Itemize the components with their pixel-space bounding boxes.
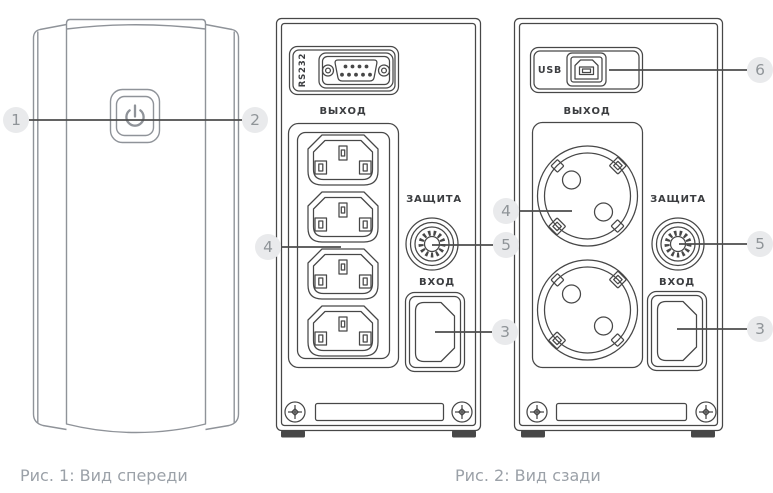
iec-outlet-column-inner	[298, 133, 390, 359]
iec-c13-outlet-2-icon	[308, 192, 378, 242]
iec-c13-outlet-1-icon	[308, 135, 378, 185]
power-icon	[126, 106, 143, 126]
label-output-iec: ВЫХОД	[283, 106, 403, 117]
callout-badge-6-usb-port: 6	[747, 57, 773, 83]
callout-badge-2-power-button: 2	[242, 107, 268, 133]
rear-panel-schuko-drawing	[515, 19, 723, 438]
schuko-c14-inlet-icon	[648, 292, 707, 371]
label-usb: USB	[536, 65, 564, 76]
foot	[521, 431, 545, 438]
callout-badge-4-iec-outlets: 4	[255, 234, 281, 260]
figure2-caption: Рис. 2: Вид сзади	[455, 466, 601, 485]
tower-front-face	[67, 20, 206, 433]
ups-views-figure: 1 2 4 5 3 6 4 5 3 RS232 ВЫХОД ЗАЩИТА ВХО…	[0, 0, 773, 493]
callout-badge-4-schuko-outlets: 4	[493, 198, 519, 224]
screw-icon	[285, 402, 305, 422]
label-protection-iec: ЗАЩИТА	[392, 194, 476, 205]
figure1-caption: Рис. 1: Вид спереди	[20, 466, 188, 485]
label-input-schuko: ВХОД	[635, 277, 719, 288]
front-view-drawing	[34, 20, 239, 433]
callout-badge-3-schuko-inlet: 3	[747, 316, 773, 342]
vent-slot	[316, 404, 444, 421]
callout-badge-1-power-button: 1	[3, 107, 29, 133]
callout-badge-5-schuko-breaker: 5	[747, 231, 773, 257]
label-input-iec: ВХОД	[395, 277, 479, 288]
usb-b-port-icon	[567, 53, 606, 86]
vent-slot	[557, 404, 687, 421]
iec-c13-outlet-3-icon	[308, 249, 378, 299]
label-protection-schuko: ЗАЩИТА	[636, 194, 720, 205]
schuko-outlet-2-icon	[538, 260, 638, 360]
screw-icon	[527, 402, 547, 422]
label-output-schuko: ВЫХОД	[527, 106, 647, 117]
foot	[691, 431, 715, 438]
label-rs232: RS232	[298, 40, 308, 100]
tower-top-bevel-arc	[67, 25, 206, 29]
schuko-outlet-1-icon	[538, 146, 638, 246]
callout-badge-5-iec-breaker: 5	[493, 232, 519, 258]
breaker-icon-iec	[406, 218, 458, 270]
screw-icon	[452, 402, 472, 422]
screw-icon	[696, 402, 716, 422]
line-art-canvas	[0, 0, 773, 493]
callout-badge-3-iec-inlet: 3	[492, 319, 518, 345]
foot	[452, 431, 476, 438]
iec-c13-outlet-4-icon	[308, 306, 378, 356]
schuko-outlet-column	[533, 123, 643, 368]
db9-serial-port-icon	[319, 53, 393, 88]
foot	[281, 431, 305, 438]
